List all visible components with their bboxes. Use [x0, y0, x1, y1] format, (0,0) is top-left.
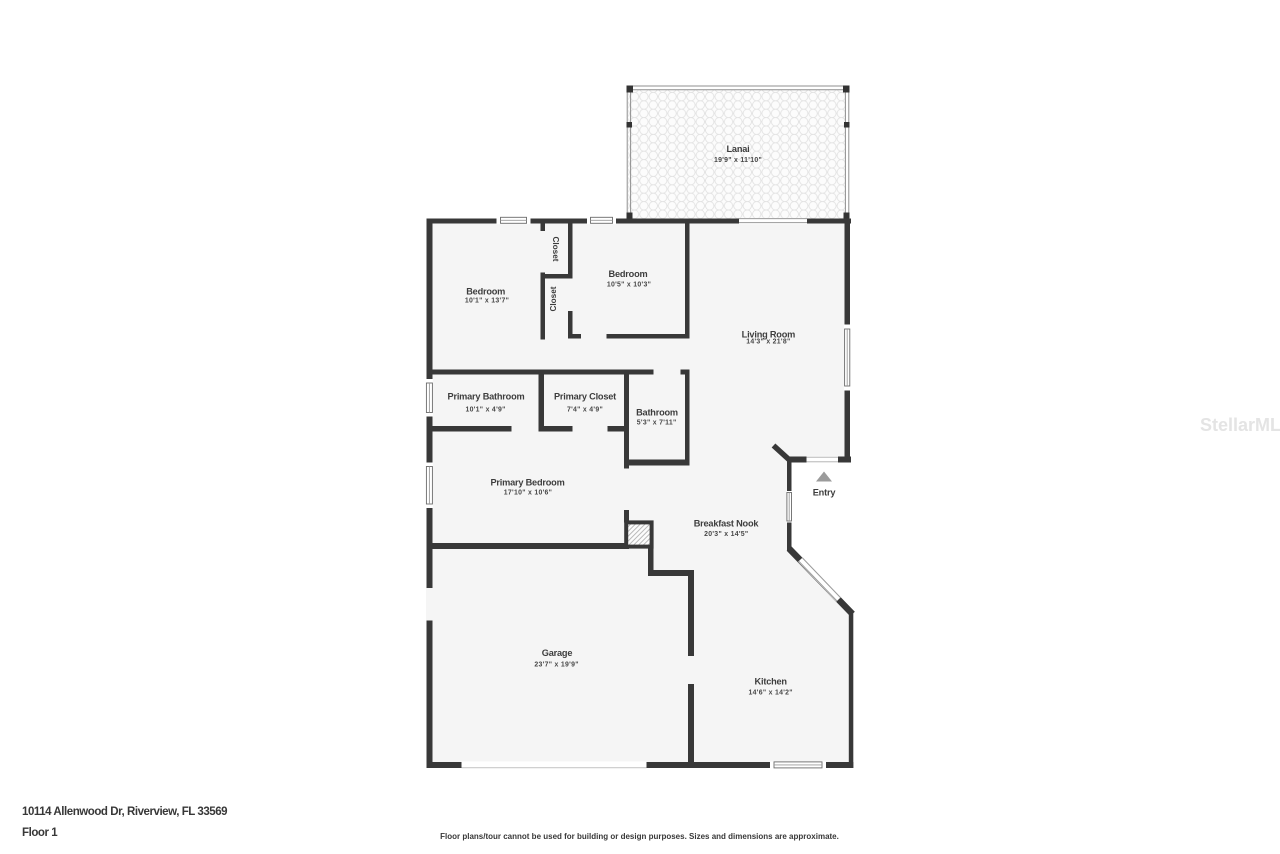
- svg-text:23'7" x 19'9": 23'7" x 19'9": [534, 661, 578, 668]
- svg-text:Breakfast Nook: Breakfast Nook: [694, 519, 760, 529]
- svg-text:7'4" x 4'9": 7'4" x 4'9": [567, 406, 603, 413]
- svg-text:17'10" x 10'6": 17'10" x 10'6": [504, 490, 553, 497]
- svg-text:20'3" x 14'5": 20'3" x 14'5": [704, 531, 748, 538]
- svg-text:Lanai: Lanai: [727, 144, 750, 154]
- svg-text:14'3" x 21'8": 14'3" x 21'8": [746, 339, 790, 346]
- svg-text:Bathroom: Bathroom: [636, 408, 678, 418]
- svg-text:10'1" x 4'9": 10'1" x 4'9": [465, 406, 505, 413]
- svg-text:Primary Bathroom: Primary Bathroom: [448, 392, 525, 402]
- svg-text:Garage: Garage: [542, 648, 573, 658]
- svg-text:Kitchen: Kitchen: [755, 677, 788, 687]
- svg-text:Closet: Closet: [549, 286, 558, 311]
- svg-text:10'5" x 10'3": 10'5" x 10'3": [607, 282, 651, 289]
- svg-text:Bedroom: Bedroom: [609, 269, 648, 279]
- svg-text:Closet: Closet: [551, 236, 560, 261]
- svg-text:10'1" x 13'7": 10'1" x 13'7": [465, 298, 509, 305]
- svg-text:Floor plans/tour cannot be use: Floor plans/tour cannot be used for buil…: [440, 832, 839, 841]
- svg-text:Floor 1: Floor 1: [22, 827, 58, 839]
- svg-text:Primary Closet: Primary Closet: [554, 392, 616, 402]
- svg-text:14'6" x 14'2": 14'6" x 14'2": [749, 689, 793, 696]
- svg-text:StellarMLS: StellarMLS: [1200, 415, 1280, 435]
- svg-text:Bedroom: Bedroom: [466, 287, 505, 297]
- svg-text:19'9" x 11'10": 19'9" x 11'10": [714, 157, 762, 164]
- svg-text:10114 Allenwood Dr, Riverview,: 10114 Allenwood Dr, Riverview, FL 33569: [22, 806, 227, 818]
- svg-text:5'3" x 7'11": 5'3" x 7'11": [637, 420, 677, 427]
- svg-text:Primary Bedroom: Primary Bedroom: [490, 478, 564, 488]
- svg-text:Entry: Entry: [813, 488, 837, 498]
